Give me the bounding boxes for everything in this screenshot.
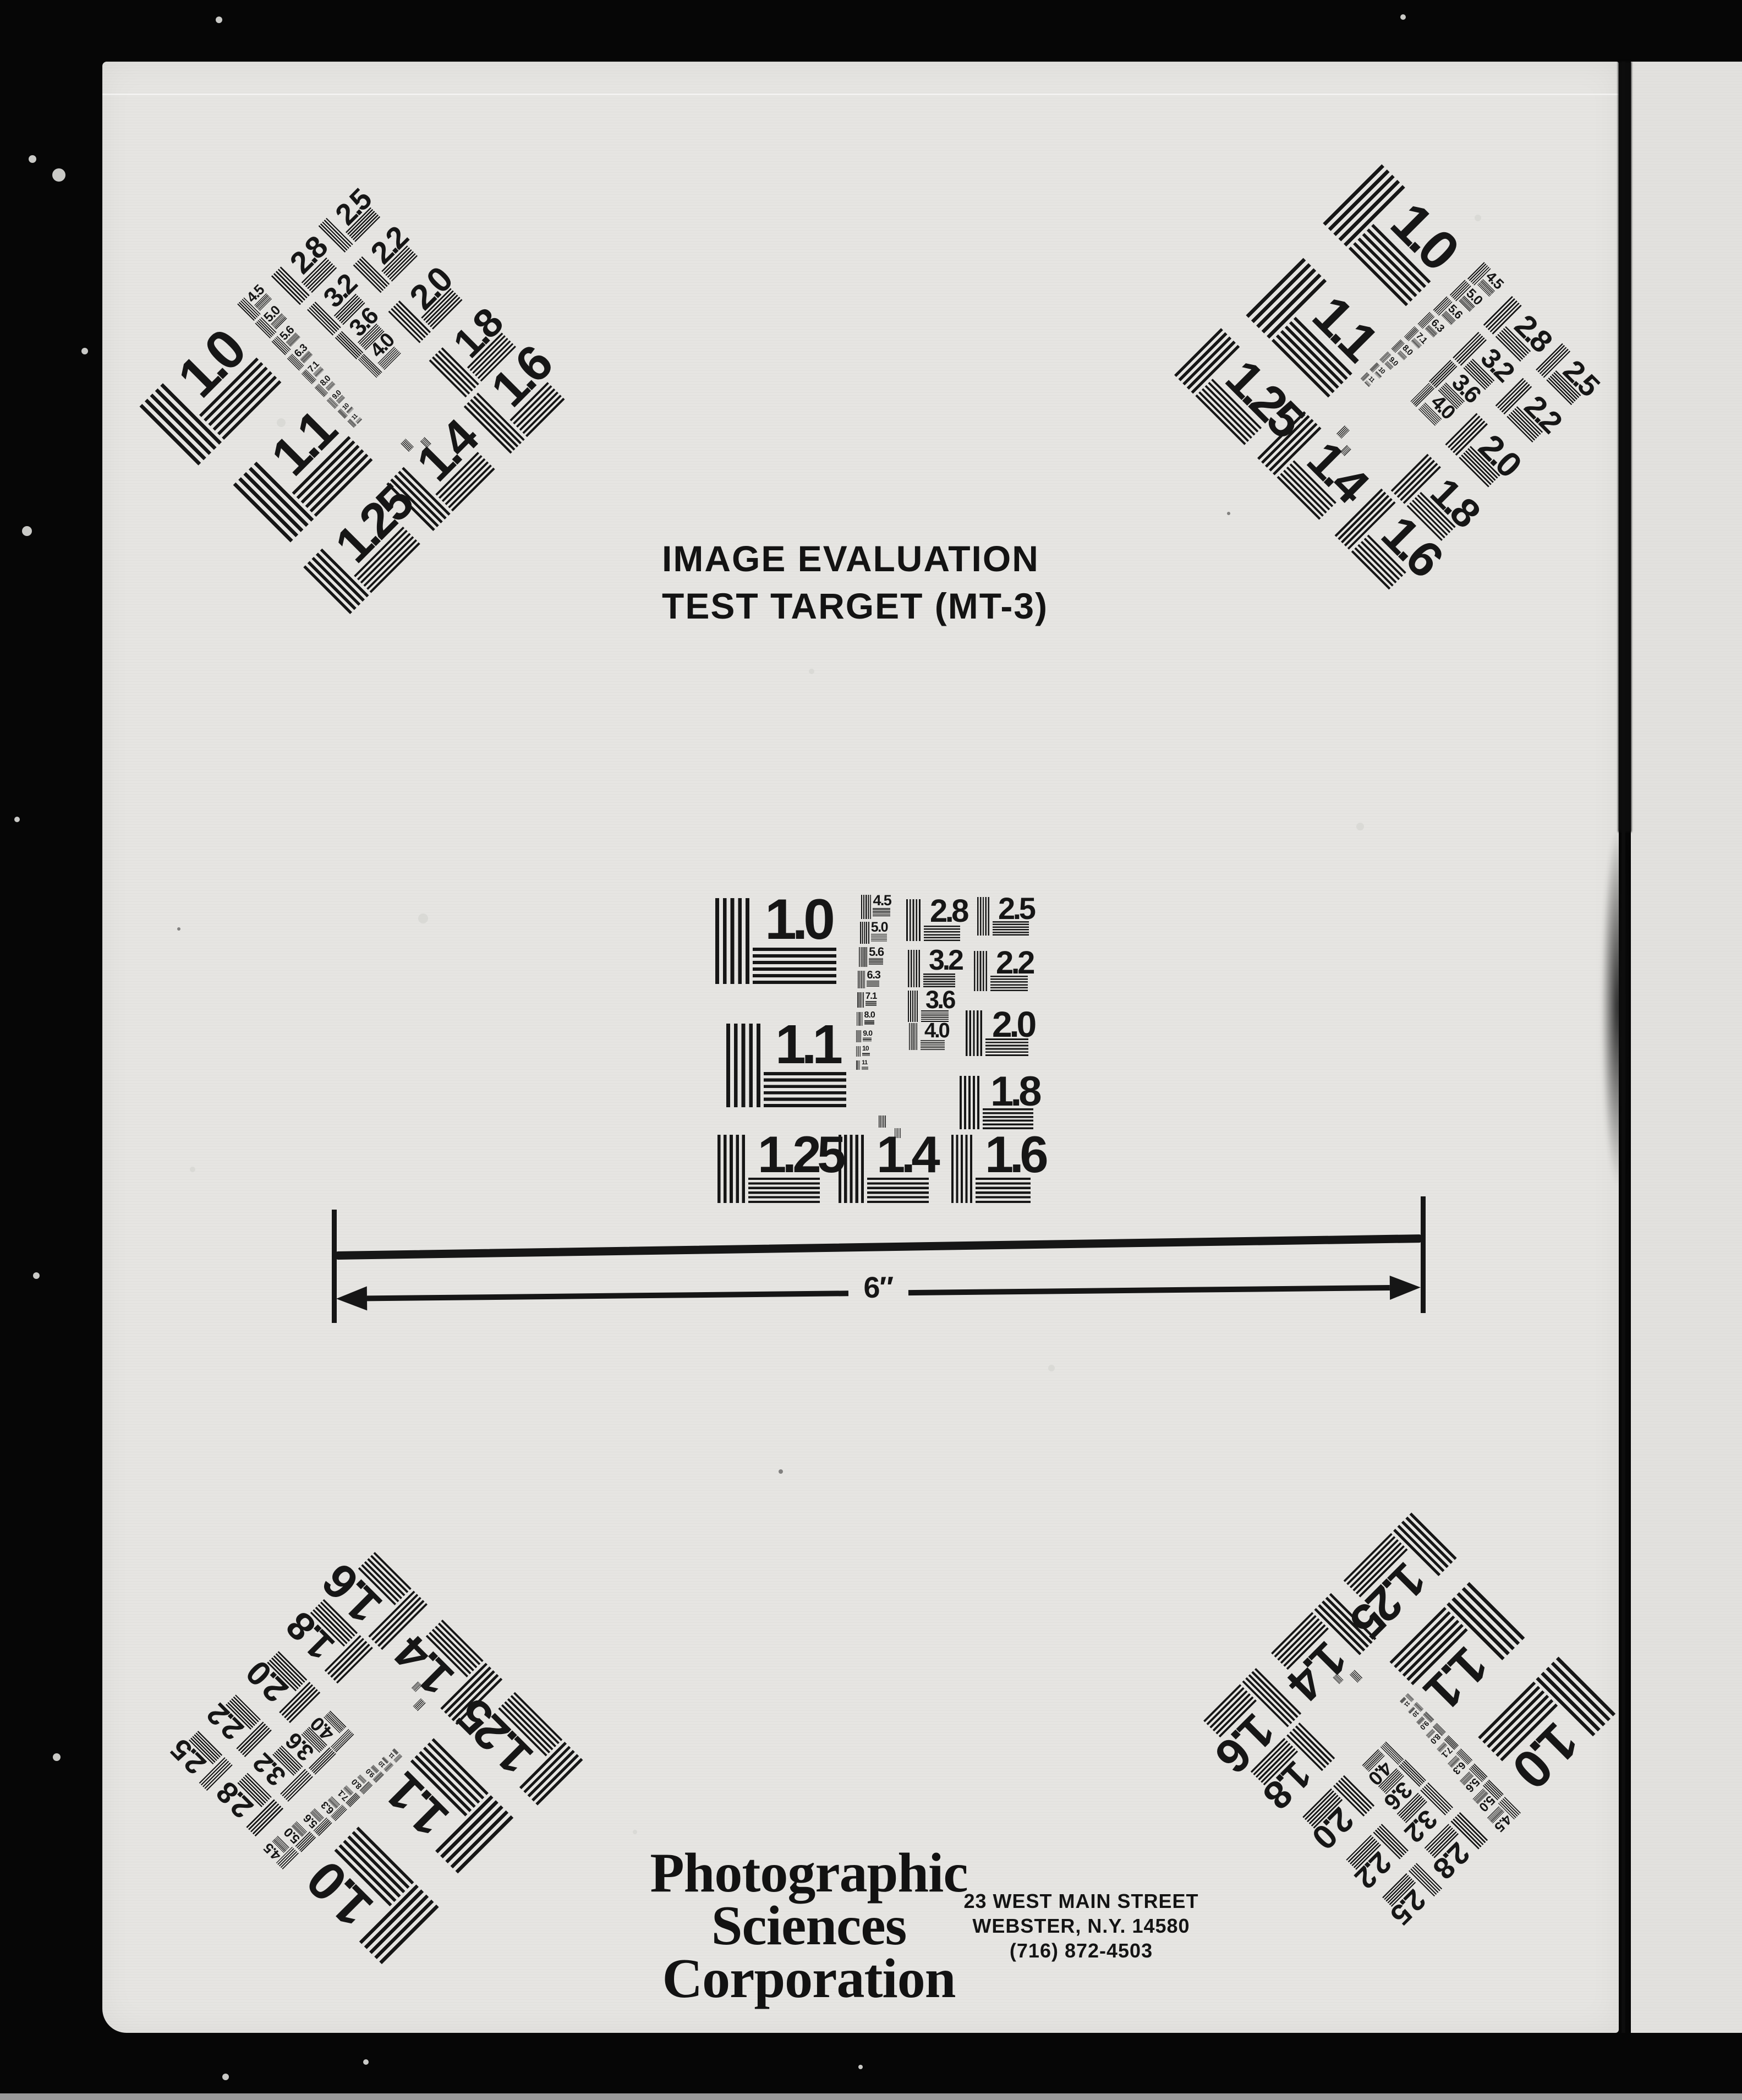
ladder-step: 8.0	[857, 1012, 875, 1026]
dust-speck	[177, 927, 180, 931]
dust-speck	[190, 1167, 195, 1172]
dust-speck	[858, 2065, 863, 2069]
dust-speck	[633, 1830, 637, 1834]
dust-speck	[418, 914, 428, 923]
ladder-step: 10	[856, 1046, 870, 1057]
title-line-2: TEST TARGET (MT-3)	[662, 582, 1048, 630]
ladder-label-column: 5.0	[871, 922, 888, 944]
ladder-bars-icon	[873, 908, 890, 916]
resolution-group-2-8: 2.8	[906, 899, 967, 941]
resolution-value-label: 3.2	[929, 950, 962, 972]
dust-speck	[14, 817, 20, 822]
ladder-step: 7.1	[857, 992, 877, 1008]
dust-speck	[222, 2074, 229, 2080]
ladder-step: 5.6	[859, 947, 884, 967]
ladder-value-label: 10	[862, 1046, 870, 1052]
ladder-step: 11	[1400, 1693, 1414, 1708]
group-label-column: 2.5	[993, 897, 1033, 936]
arrow-segment	[367, 1290, 848, 1301]
ladder-value-label: 5.6	[869, 947, 884, 957]
resolution-group-2-0: 2.0	[966, 1010, 1034, 1056]
ladder-step: 11	[856, 1060, 868, 1070]
test-target-center: 1.01.11.251.41.62.83.23.64.02.52.22.01.8…	[715, 890, 1056, 1204]
resolution-group-1-8: 1.8	[960, 1076, 1038, 1129]
horizontal-bars-icon	[924, 926, 960, 941]
ladder-terminal-mark-icon	[879, 1115, 886, 1128]
ladder-label-column: 11	[862, 1060, 868, 1070]
arrowhead-left-icon	[336, 1286, 367, 1311]
resolution-value-label: 1.4	[877, 1135, 936, 1174]
film-scratch-line	[102, 94, 1619, 95]
vertical-bars-icon	[908, 950, 920, 987]
ladder-bars-icon	[857, 992, 864, 1008]
adjacent-page-edge	[1631, 62, 1742, 2033]
ladder-terminal-mark-icon	[895, 1128, 901, 1138]
resolution-group-4-0: 4.0	[909, 1023, 949, 1050]
scanned-microfilm-frame: IMAGE EVALUATION TEST TARGET (MT-3) 1.01…	[0, 0, 1742, 2100]
group-label-column: 1.4	[867, 1135, 936, 1203]
arrowhead-right-icon	[1390, 1275, 1421, 1300]
ladder-value-label: 7.1	[865, 992, 877, 1000]
ladder-bars-icon	[862, 1067, 868, 1070]
ladder-bars-icon	[857, 1012, 863, 1026]
ladder-bars-icon	[864, 1020, 874, 1025]
ladder-step: 6.3	[858, 971, 880, 988]
vertical-bars-icon	[966, 1010, 982, 1056]
address-line: (716) 872-4503	[957, 1938, 1205, 1963]
ladder-bars-icon	[856, 1060, 860, 1070]
dust-speck	[52, 168, 65, 182]
dust-speck	[1475, 215, 1481, 221]
resolution-group-3-6: 3.6	[908, 991, 954, 1022]
address-line: 23 WEST MAIN STREET	[957, 1889, 1205, 1913]
vertical-bars-icon	[960, 1076, 979, 1129]
horizontal-bars-icon	[764, 1072, 846, 1107]
title-line-1: IMAGE EVALUATION	[662, 535, 1048, 582]
ladder-bars-icon	[869, 958, 883, 965]
vertical-bars-icon	[839, 1135, 864, 1203]
resolution-value-label: 1.25	[758, 1135, 842, 1174]
resolution-value-label: 2.8	[930, 899, 967, 923]
dust-speck	[81, 348, 88, 354]
resolution-value-label: 1.6	[985, 1135, 1044, 1174]
ladder-bars-icon	[862, 1053, 870, 1056]
ladder-bars-icon	[871, 934, 887, 942]
vertical-bars-icon	[715, 898, 749, 984]
dust-speck	[809, 669, 814, 674]
resolution-value-label: 2.2	[996, 951, 1033, 975]
group-label-column: 1.25	[748, 1135, 842, 1203]
ladder-value-label: 8.0	[864, 1012, 875, 1019]
dust-speck	[363, 2059, 369, 2065]
company-name-block: Photographic Sciences Corporation	[622, 1847, 996, 2005]
arrow-segment	[908, 1285, 1390, 1295]
group-label-column: 1.1	[764, 1024, 846, 1107]
ladder-step: 5.0	[860, 922, 888, 944]
dust-speck	[1227, 512, 1230, 515]
resolution-group-1-6: 1.6	[951, 1135, 1044, 1203]
dust-speck	[33, 1272, 40, 1279]
scale-rule-line	[336, 1234, 1421, 1260]
group-label-column: 2.8	[924, 899, 967, 941]
address-line: WEBSTER, N.Y. 14580	[957, 1913, 1205, 1938]
ladder-label-column: 5.6	[869, 947, 884, 967]
ladder-value-label: 11	[862, 1060, 868, 1065]
ladder-bars-icon	[863, 1037, 872, 1041]
company-name-line: Corporation	[622, 1953, 996, 2005]
ladder-label-column: 7.1	[865, 992, 877, 1008]
group-label-column: 2.0	[985, 1010, 1034, 1056]
scale-dimension-arrow: 6″	[336, 1274, 1421, 1312]
vertical-bars-icon	[906, 899, 921, 941]
dust-speck	[216, 17, 222, 23]
resolution-group-1-1: 1.1	[726, 1024, 846, 1107]
ladder-step: 4.5	[861, 895, 891, 919]
dust-speck	[53, 1753, 61, 1761]
ladder-value-label: 9.0	[863, 1030, 872, 1036]
resolution-value-label: 1.1	[775, 1024, 846, 1065]
dust-speck	[1400, 14, 1406, 20]
horizontal-bars-icon	[985, 1038, 1028, 1056]
resolution-group-3-2: 3.2	[908, 950, 962, 987]
dust-speck	[1048, 1365, 1055, 1371]
ladder-bars-icon	[856, 1046, 861, 1057]
ladder-bars-icon	[860, 922, 869, 944]
scanner-bed-edge	[0, 2093, 1742, 2100]
ladder-bars-icon	[858, 971, 865, 988]
group-label-column: 3.2	[923, 950, 962, 987]
ladder-label-column: 9.0	[863, 1030, 872, 1042]
vertical-bars-icon	[977, 897, 989, 936]
vertical-bars-icon	[909, 1023, 917, 1050]
ladder-label-column: 6.3	[867, 971, 880, 988]
horizontal-bars-icon	[753, 948, 836, 984]
ladder-step: 11	[388, 1748, 402, 1763]
resolution-group-1-25: 1.25	[717, 1135, 842, 1203]
horizontal-bars-icon	[983, 1108, 1033, 1129]
group-label-column: 1.6	[976, 1135, 1044, 1203]
ladder-bars-icon	[865, 1001, 877, 1007]
resolution-value-label: 4.0	[924, 1023, 949, 1039]
group-label-column: 2.2	[990, 951, 1033, 991]
horizontal-bars-icon	[993, 921, 1029, 936]
resolution-value-label: 1.8	[990, 1076, 1038, 1108]
scale-length-label: 6″	[863, 1270, 894, 1305]
vertical-bars-icon	[908, 991, 918, 1022]
resolution-group-2-2: 2.2	[974, 951, 1033, 991]
vertical-bars-icon	[726, 1024, 760, 1107]
ladder-bars-icon	[856, 1030, 861, 1042]
company-name-line: Sciences	[622, 1900, 996, 1953]
ladder-bars-icon	[859, 947, 867, 967]
resolution-value-label: 3.6	[925, 991, 954, 1009]
horizontal-bars-icon	[990, 976, 1028, 991]
dust-speck	[29, 155, 36, 163]
ladder-step: 11	[347, 413, 362, 428]
ladder-label-column: 8.0	[864, 1012, 875, 1026]
dust-speck	[1356, 823, 1364, 830]
dust-speck	[277, 418, 286, 427]
resolution-value-label: 1.0	[765, 898, 836, 942]
ladder-bars-icon	[861, 895, 871, 919]
resolution-group-1-4: 1.4	[839, 1135, 936, 1203]
ladder-value-label: 4.5	[873, 895, 891, 907]
ladder-step: 9.0	[856, 1030, 872, 1042]
vertical-bars-icon	[951, 1135, 972, 1203]
dust-speck	[779, 1469, 783, 1474]
resolution-group-1-0: 1.0	[715, 898, 836, 984]
six-inch-scale-bar: 6″	[332, 1194, 1426, 1337]
resolution-value-label: 2.0	[992, 1010, 1034, 1038]
vertical-bars-icon	[974, 951, 987, 991]
ladder-bars-icon	[867, 981, 879, 987]
group-label-column: 3.6	[921, 991, 954, 1022]
title-block: IMAGE EVALUATION TEST TARGET (MT-3)	[662, 535, 1048, 630]
group-label-column: 4.0	[921, 1023, 949, 1050]
page-gap-line	[1622, 62, 1625, 2033]
company-address-block: 23 WEST MAIN STREET WEBSTER, N.Y. 14580 …	[957, 1889, 1205, 1963]
company-name-line: Photographic	[622, 1847, 996, 1900]
group-label-column: 1.0	[753, 898, 836, 984]
scale-end-tick-right	[1421, 1196, 1426, 1313]
group-label-column: 1.8	[983, 1076, 1038, 1129]
ladder-step: 11	[1361, 372, 1376, 387]
ladder-terminal-mark-icon	[1350, 1670, 1362, 1682]
ladder-value-label: 6.3	[867, 971, 880, 980]
dust-speck	[22, 526, 32, 536]
resolution-value-label: 2.5	[998, 897, 1033, 921]
horizontal-bars-icon	[921, 1040, 945, 1050]
resolution-group-2-5: 2.5	[977, 897, 1033, 936]
ladder-label-column: 10	[862, 1046, 870, 1057]
vertical-bars-icon	[717, 1135, 745, 1203]
ladder-label-column: 4.5	[873, 895, 891, 919]
ladder-value-label: 5.0	[871, 922, 888, 933]
